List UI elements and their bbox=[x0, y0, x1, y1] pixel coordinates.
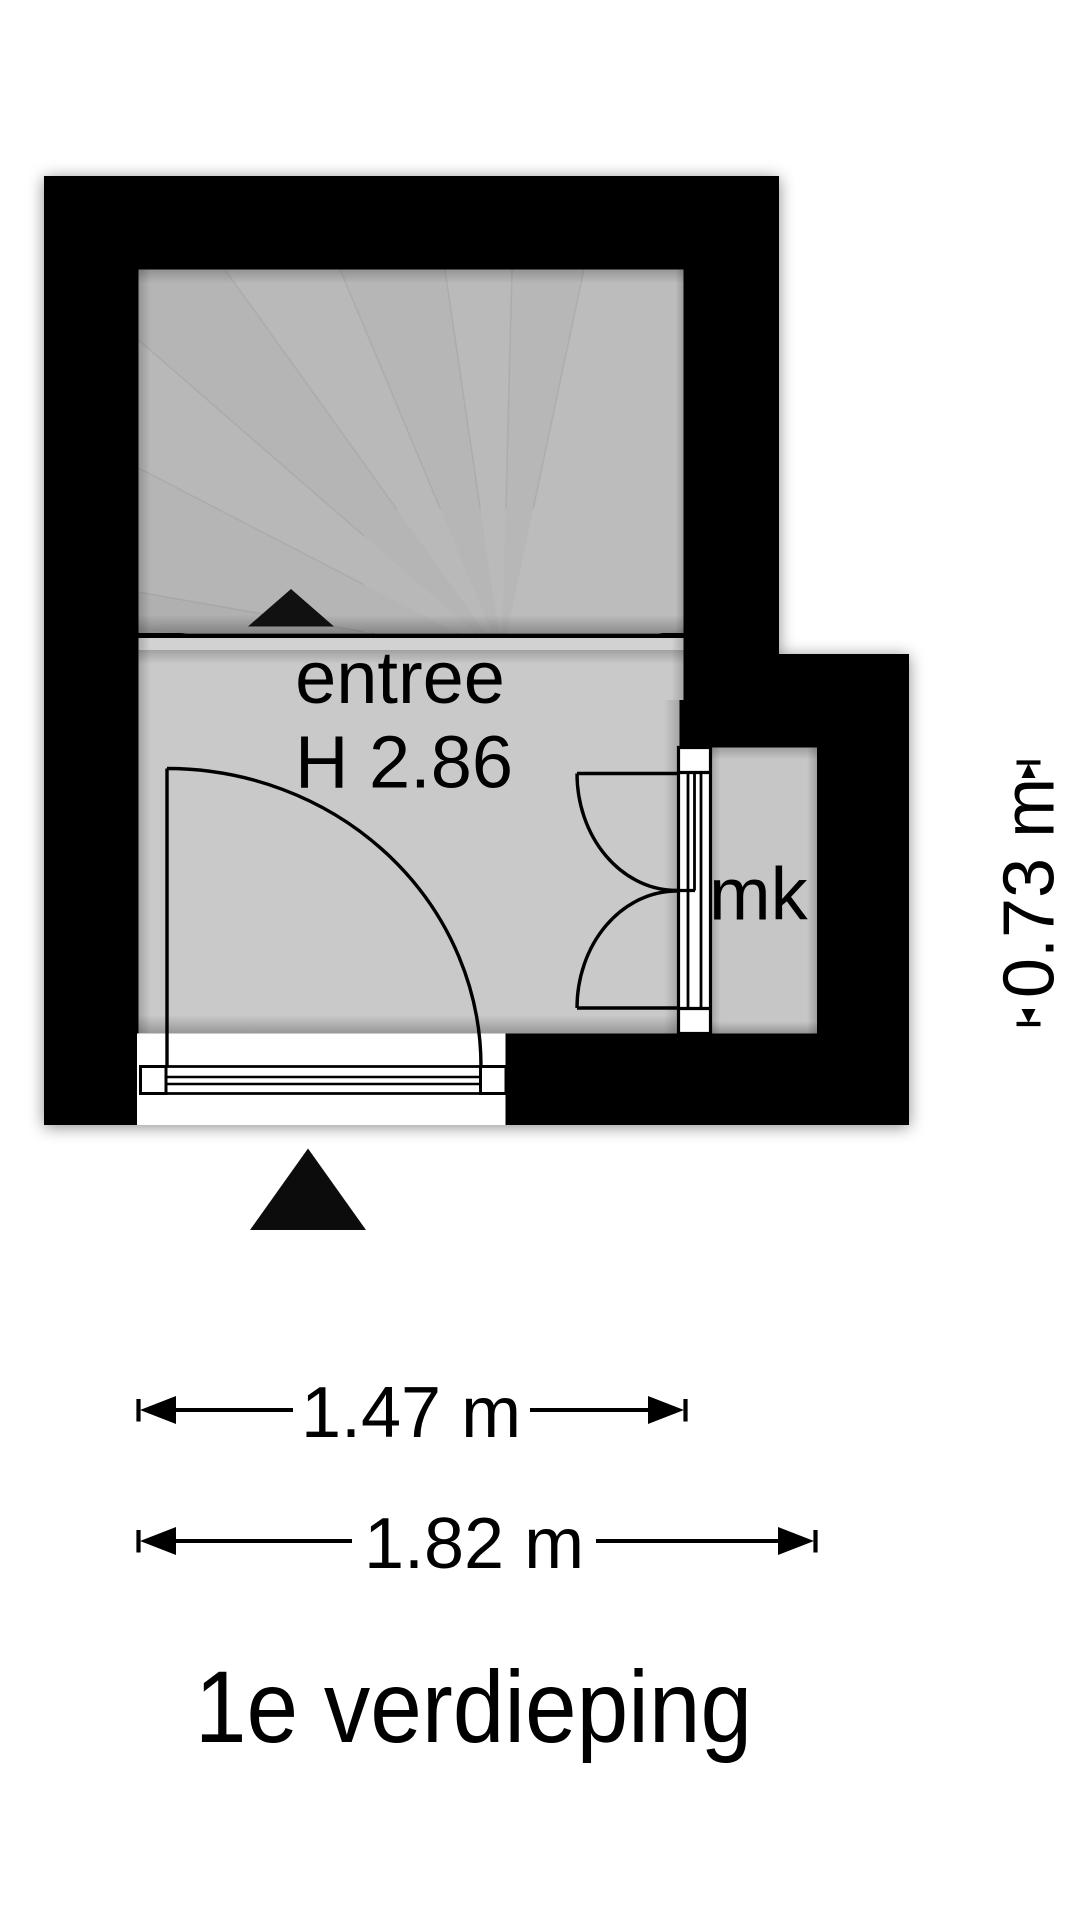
svg-text:1.47 m: 1.47 m bbox=[301, 1373, 521, 1453]
svg-text:H 2.86: H 2.86 bbox=[295, 721, 513, 804]
svg-text:1.82 m: 1.82 m bbox=[364, 1504, 584, 1584]
svg-text:mk: mk bbox=[709, 853, 809, 936]
svg-text:1e verdieping: 1e verdieping bbox=[195, 1650, 752, 1764]
svg-text:entree: entree bbox=[295, 636, 505, 719]
svg-text:0.73 m: 0.73 m bbox=[990, 778, 1070, 998]
